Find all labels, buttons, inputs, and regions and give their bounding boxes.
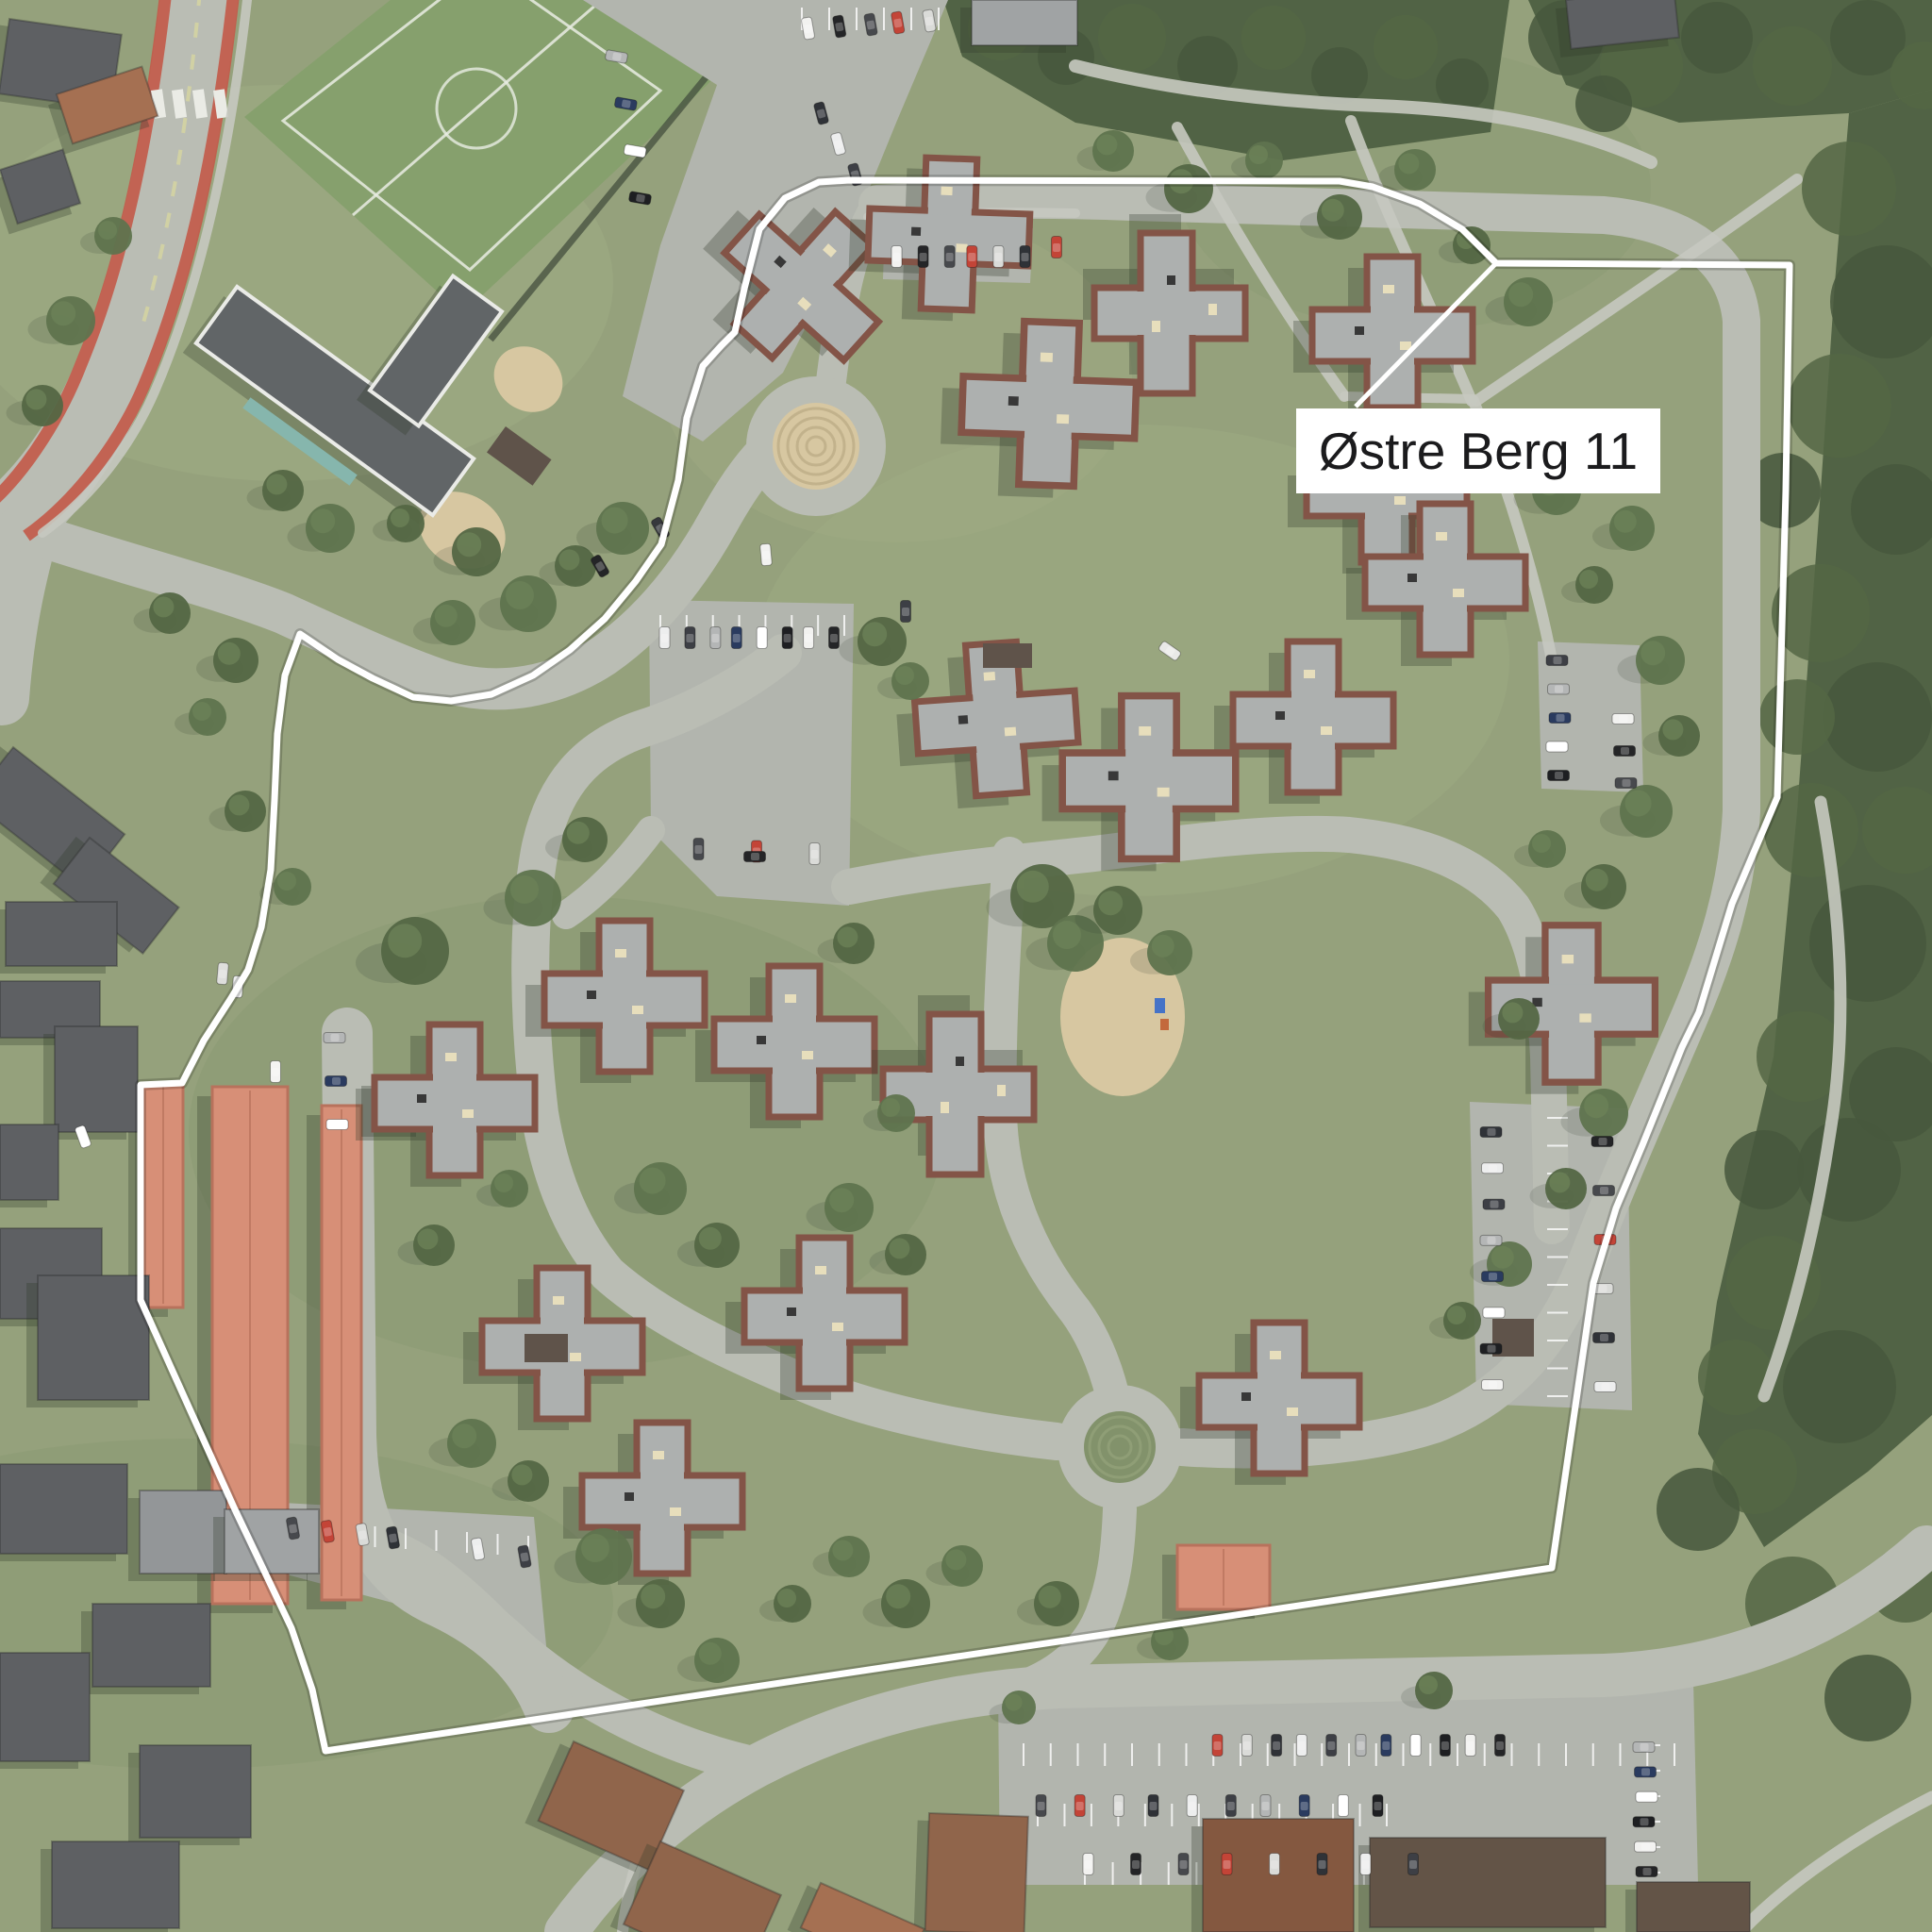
haze	[0, 0, 1932, 1932]
aerial-map-canvas[interactable]	[0, 0, 1932, 1932]
aerial-map-view[interactable]: Østre Berg 11	[0, 0, 1932, 1932]
site-label: Østre Berg 11	[1296, 408, 1660, 493]
site-label-text: Østre Berg 11	[1319, 421, 1638, 481]
